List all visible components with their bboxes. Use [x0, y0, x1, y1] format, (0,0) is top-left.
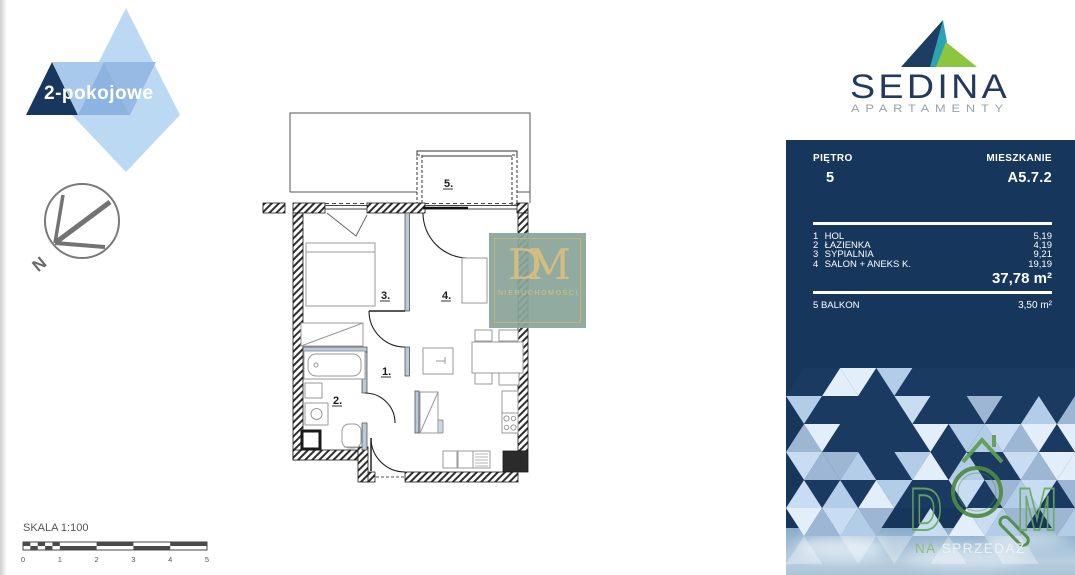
page-edge-shadow	[0, 0, 7, 575]
floor-label: PIĘTRO	[813, 153, 853, 164]
caption-sprzedaz: SPRZEDAŻ	[942, 541, 1026, 556]
svg-text:4: 4	[168, 555, 172, 564]
room-area: 19,19	[1028, 260, 1052, 269]
dom-letter-m: M	[1017, 476, 1057, 543]
label-bath: 2.	[333, 395, 342, 407]
svg-text:1: 1	[58, 555, 62, 564]
table	[472, 342, 523, 373]
mosaic-triangle	[786, 536, 822, 564]
compass-arm-2	[55, 202, 110, 243]
svg-text:0: 0	[21, 555, 25, 564]
total-area: 37,78 m²	[813, 271, 1052, 287]
sedina-logo: SEDINA APARTAMENTY	[840, 8, 1020, 120]
label-hall: 1.	[382, 366, 391, 378]
label-balcony: 5.	[444, 178, 453, 190]
magnifier-lens	[958, 473, 996, 511]
room-area: 3,50 m²	[1018, 300, 1052, 311]
flyer-page: { "badge": {"label": "2-pokojowe"}, "com…	[0, 0, 1075, 575]
bathroom-sink	[305, 383, 322, 398]
wardrobe-salon	[462, 258, 487, 303]
magnifier-icon	[953, 468, 1001, 516]
house-roof-icon	[963, 440, 1002, 462]
stove	[502, 413, 518, 433]
divider	[813, 222, 1052, 225]
chair	[499, 373, 519, 385]
chair	[475, 330, 492, 341]
divider	[813, 291, 1052, 294]
unit-label: MIESZKANIE	[986, 153, 1052, 164]
dom-na-sprzedaz-logo: D M NASPRZEDAŻ	[870, 425, 1075, 560]
building-outline	[290, 113, 530, 203]
compass-north-icon: N	[25, 180, 125, 285]
svg-text:3: 3	[131, 555, 135, 564]
scale-label: SKALA 1:100	[23, 522, 88, 534]
dom-letter-d: D	[910, 476, 942, 543]
scale-bar: SKALA 1:100 0 1 2 3 4 5	[20, 518, 230, 568]
dm-monogram: DM	[495, 243, 580, 287]
watermark-caption-text: NIERUCHOMOŚCI	[498, 290, 579, 297]
dish-drainer	[458, 451, 490, 468]
scale-ticks: 0 1 2 3 4 5	[21, 555, 209, 564]
badge-triangle-bottom	[72, 115, 180, 172]
chair	[475, 373, 492, 384]
svg-text:2: 2	[95, 555, 99, 564]
toilet	[342, 424, 361, 448]
room-no: 5	[813, 300, 818, 311]
kitchen-sink	[443, 451, 457, 468]
compass-n-label: N	[29, 253, 51, 275]
chair	[499, 330, 518, 341]
balcony	[417, 151, 517, 205]
agency-watermark: DM NIERUCHOMOŚCI	[489, 233, 586, 328]
badge-label: 2-pokojowe	[44, 83, 154, 104]
room-count-badge: 2-pokojowe	[20, 2, 190, 177]
svg-text:5: 5	[205, 555, 209, 564]
brand-name: SEDINA	[850, 68, 1010, 106]
floor-value: 5	[826, 170, 834, 186]
balcony-row: 5 BALKON 3,50 m²	[813, 300, 1052, 311]
watermark-frame: DM NIERUCHOMOŚCI	[494, 238, 581, 323]
label-bedroom: 3.	[381, 290, 390, 302]
room-name: SALON + ANEKS K.	[825, 259, 911, 270]
room-row: 4 SALON + ANEKS K. 19,19	[813, 260, 1052, 269]
na-sprzedaz-caption: NASPRZEDAŻ	[915, 541, 1026, 556]
watermark-caption: NIERUCHOMOŚCI	[495, 290, 580, 297]
room-name: BALKON	[821, 300, 860, 311]
compass-arm-3	[55, 243, 105, 247]
caption-na: NA	[915, 541, 937, 556]
doors	[365, 213, 468, 477]
room-list: 1 HOL 5,19 2 ŁAZIENKA 4,19 3 SYPIALNIA 9…	[813, 232, 1052, 269]
unit-value: A5.7.2	[1007, 170, 1052, 186]
label-salon: 4.	[442, 290, 451, 302]
counter	[502, 391, 518, 413]
room-no: 4	[813, 260, 822, 269]
brand-subtitle: APARTAMENTY	[851, 103, 1009, 115]
scale-bar-graphic	[23, 542, 207, 550]
